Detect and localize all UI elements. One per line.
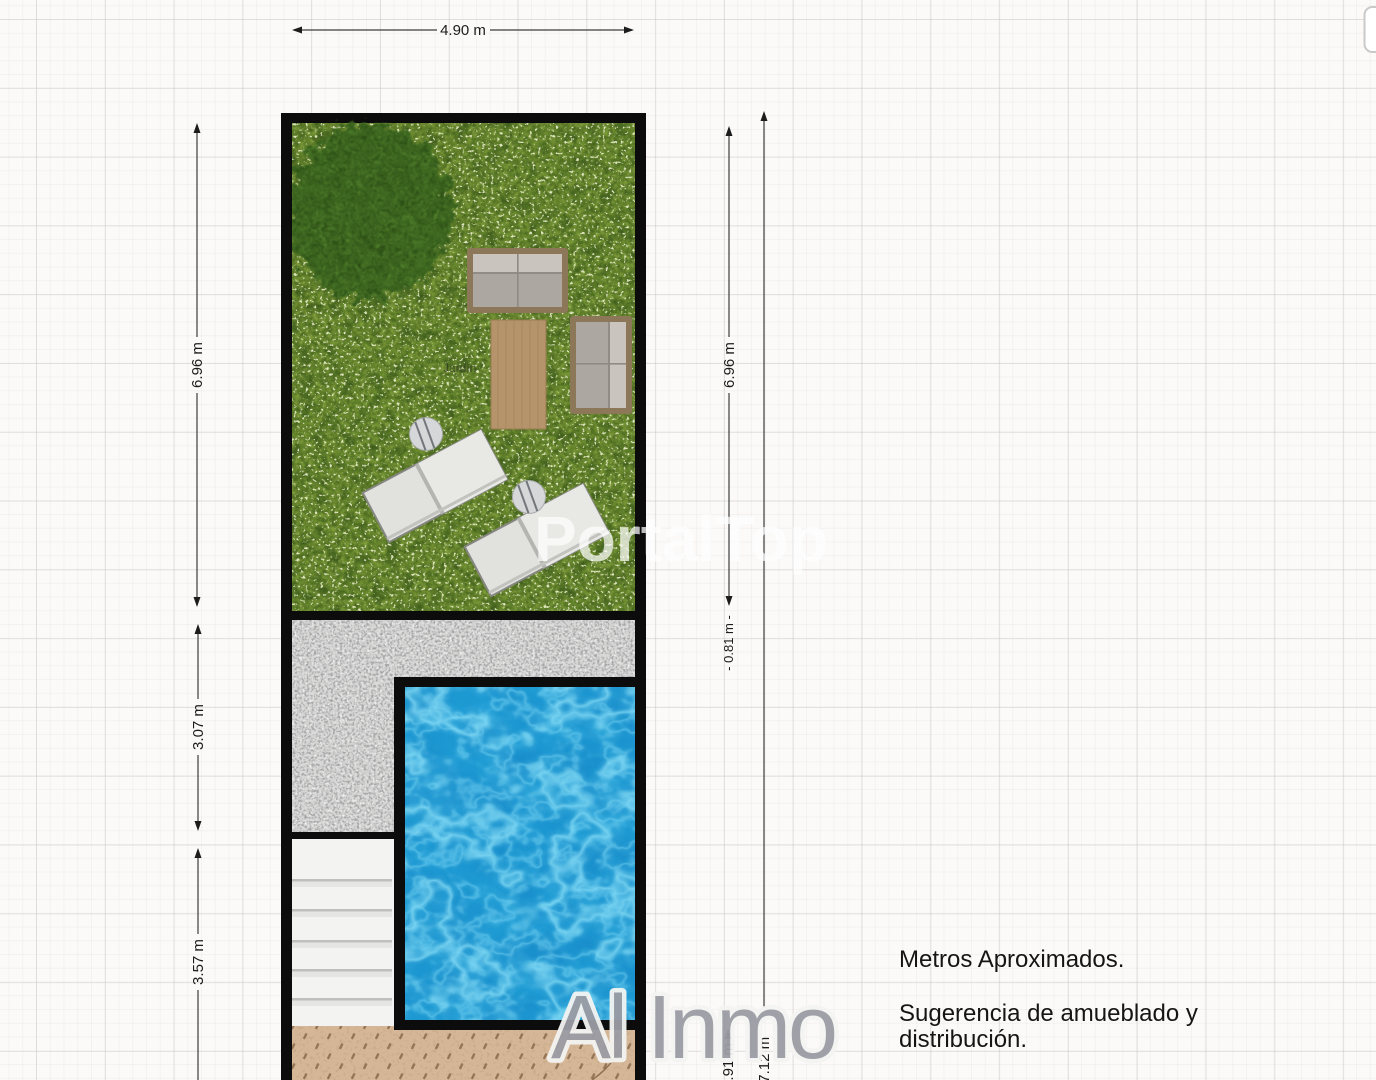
svg-text:3.07 m: 3.07 m bbox=[190, 704, 207, 750]
svg-text:Al Inmo: Al Inmo bbox=[551, 978, 835, 1078]
svg-text:distribución.: distribución. bbox=[899, 1026, 1027, 1053]
svg-text:6.96 m: 6.96 m bbox=[721, 342, 738, 388]
svg-text:PortalTop: PortalTop bbox=[534, 503, 828, 575]
svg-text:- 0.81 m -: - 0.81 m - bbox=[721, 615, 736, 671]
svg-text:Sugerencia de amueblado y: Sugerencia de amueblado y bbox=[899, 1000, 1198, 1027]
svg-text:6.96 m: 6.96 m bbox=[189, 342, 206, 388]
svg-text:4.90 m: 4.90 m bbox=[440, 22, 486, 39]
svg-text:3.57 m: 3.57 m bbox=[190, 939, 207, 985]
svg-text:Metros Aproximados.: Metros Aproximados. bbox=[899, 946, 1124, 973]
svg-text:Jardín: Jardín bbox=[443, 361, 476, 375]
